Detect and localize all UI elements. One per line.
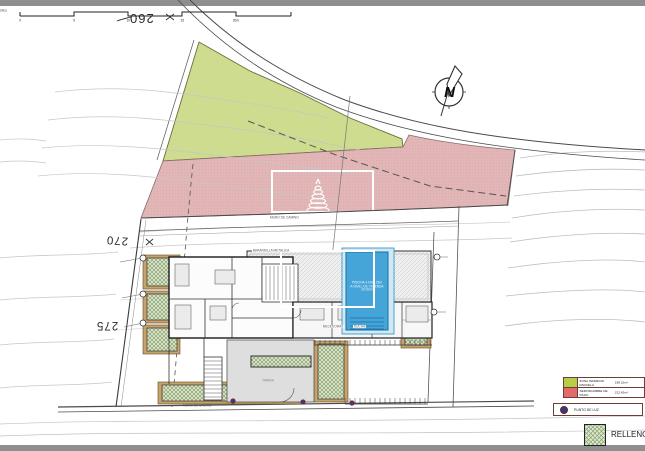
servidumbre-swatch xyxy=(564,388,578,397)
contour-label-260: 260 xyxy=(129,11,154,26)
pool-label: PISCINA 4.00x7.25m A NIVEL DE VIVIENDA 2… xyxy=(349,281,386,292)
relleno-label: RELLENO xyxy=(611,430,645,439)
site-plan-sheet: Escala Gráfica 0 5 10 15 20m 260 270 275… xyxy=(0,0,645,451)
zona-inferior-swatch xyxy=(564,378,578,387)
muro-de-camino-top-label: MURO DE CAMINO xyxy=(270,216,299,219)
green-parcel-zone xyxy=(157,40,403,161)
north-letter: N xyxy=(442,84,457,101)
tarima-label: TARIMA xyxy=(262,379,274,382)
mecedoras-label: MECEDORAS xyxy=(322,325,344,328)
legend-row-zona-inferior: ZONA INFERIOR PARCELA. 198.15m² xyxy=(564,378,644,387)
contour-label-270: 270 xyxy=(106,233,129,247)
legend-zones-table: ZONA INFERIOR PARCELA. 198.15m² SERVIDUM… xyxy=(563,377,645,398)
barandilla-label: BARANDILLA METALICA xyxy=(252,249,290,252)
contour-label-275: 275 xyxy=(96,319,118,331)
ducha-label: DUCHA xyxy=(353,325,366,328)
stairs xyxy=(204,357,222,400)
muro-de-camino-bottom-label: MURO DE CAMINO xyxy=(183,404,212,407)
terrace xyxy=(227,340,314,402)
legend-row-servidumbre: SERVIDUMBRE DE PASO. 222.42m² xyxy=(564,387,644,397)
legend-punto-de-luz: PUNTO DE LUZ xyxy=(553,403,643,416)
punto-de-luz-icon xyxy=(560,406,568,414)
relleno-swatch xyxy=(584,424,606,446)
plan-linework xyxy=(0,0,645,451)
scale-bar xyxy=(20,12,291,16)
scale-bar-title: Escala Gráfica xyxy=(0,9,7,12)
